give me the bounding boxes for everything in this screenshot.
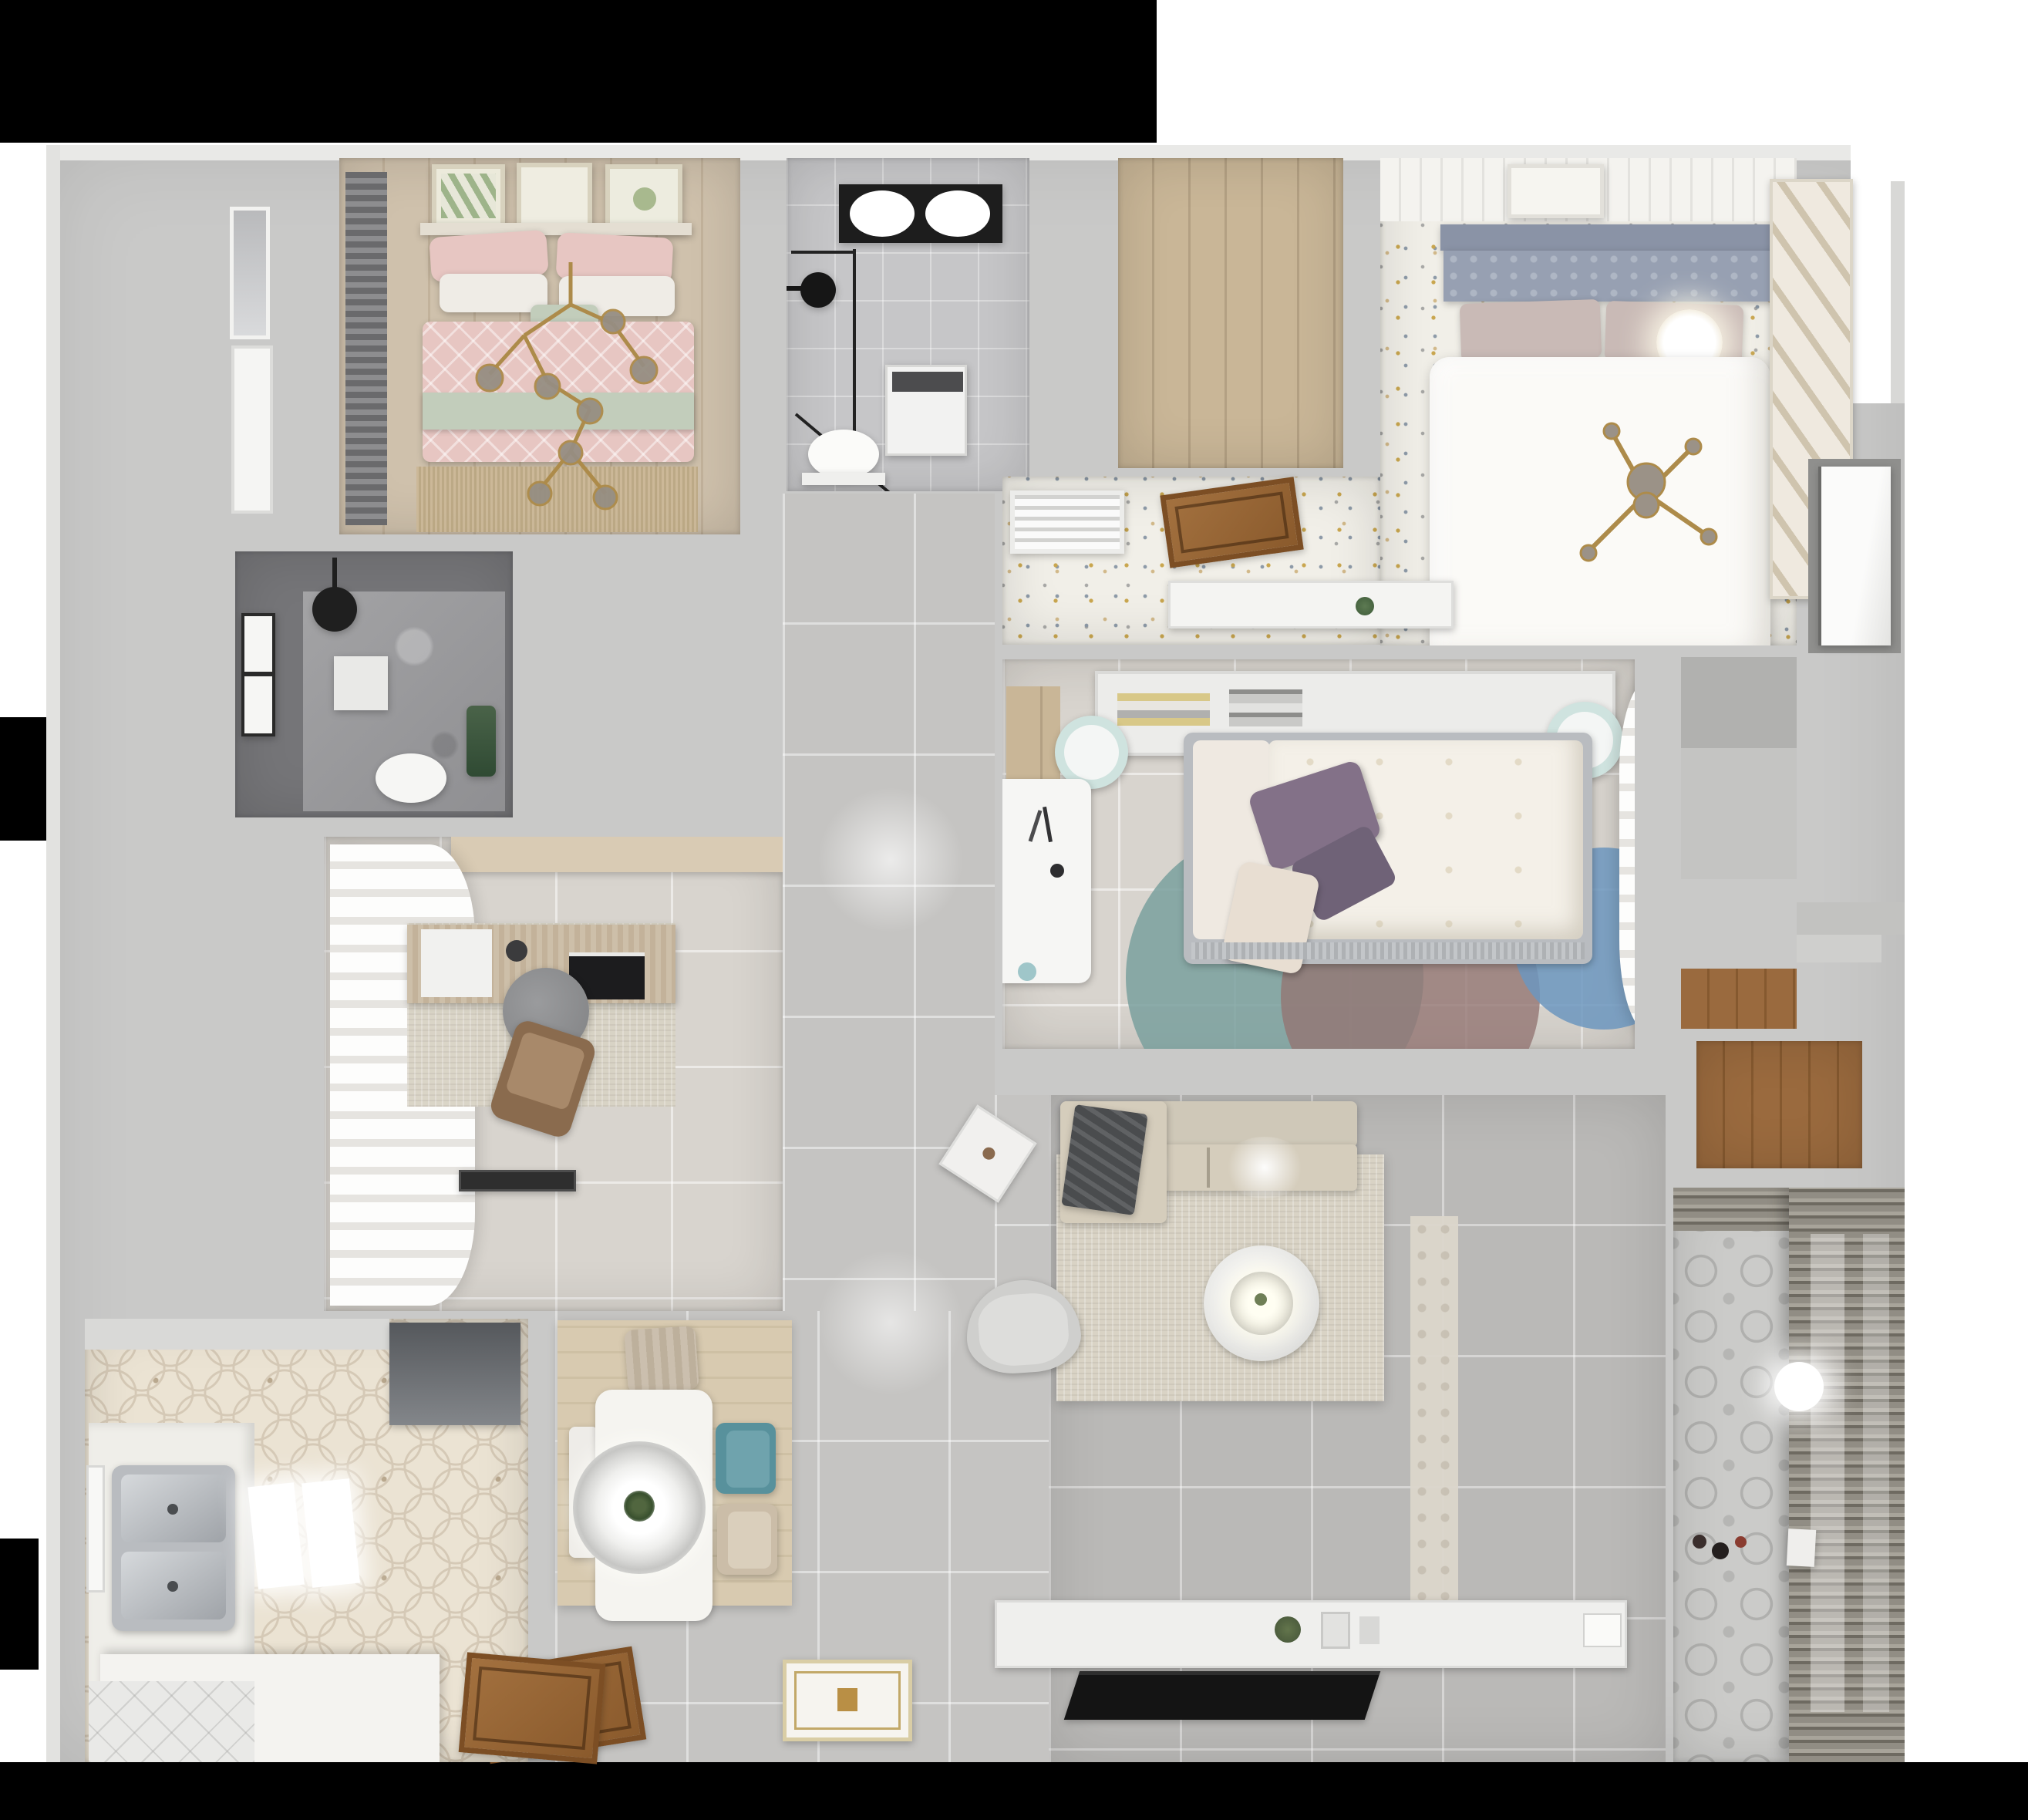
white-desk xyxy=(1002,779,1091,983)
pouf-mint-left xyxy=(1055,716,1128,789)
room-balcony xyxy=(1673,1188,1905,1762)
pillow-mauve-left xyxy=(1460,299,1602,362)
console-plant xyxy=(1275,1616,1301,1643)
toy-2 xyxy=(1712,1542,1729,1559)
blind-light-column-2 xyxy=(1863,1234,1889,1712)
annex-step-2 xyxy=(1797,935,1881,962)
shower-arm xyxy=(787,286,803,291)
mat-motif xyxy=(837,1688,857,1711)
skylight xyxy=(839,184,1002,243)
left-wall-door xyxy=(231,345,273,514)
washer-panel xyxy=(892,372,963,392)
art-frame-1 xyxy=(432,164,505,228)
pouf-top xyxy=(1064,725,1119,780)
toilet xyxy=(376,753,446,803)
shower-glass-v xyxy=(853,249,856,438)
pen-cup xyxy=(506,940,527,962)
dining-chair-teal xyxy=(716,1423,776,1494)
toilet xyxy=(808,430,879,479)
armchair-seat xyxy=(976,1291,1070,1368)
tv-console xyxy=(995,1600,1627,1668)
annex-step-1 xyxy=(1797,902,1905,935)
dining-chair-top xyxy=(624,1326,699,1394)
sheer-curtain-right xyxy=(1619,679,1635,1033)
wall-shelf xyxy=(334,656,388,710)
room-bedroom-pink xyxy=(339,158,740,534)
headboard-bar xyxy=(1440,224,1781,251)
shaft-wood-ledge xyxy=(1681,969,1797,1029)
matte-left-b xyxy=(0,1539,39,1670)
ac-vent-grille xyxy=(1010,490,1124,554)
window-mullion xyxy=(244,672,272,676)
skylight-glow-left xyxy=(850,190,915,237)
toy-3 xyxy=(1735,1536,1747,1548)
pendant-plant xyxy=(624,1491,655,1522)
floor-plan-render xyxy=(0,0,2028,1820)
cabinet-strip xyxy=(451,837,783,872)
matte-left-a xyxy=(0,717,46,841)
art-frame-3 xyxy=(605,164,682,232)
console-frame-2 xyxy=(1359,1616,1380,1644)
pendant-lamp xyxy=(573,1441,706,1574)
art-frame xyxy=(1508,164,1604,218)
pen-1 xyxy=(1029,810,1043,841)
console-shelf xyxy=(1168,581,1454,629)
hall-light-glow-1 xyxy=(817,787,964,933)
room-kitchen xyxy=(85,1319,528,1762)
ceiling-light-1 xyxy=(248,1482,305,1589)
matte-top xyxy=(0,0,1157,143)
annex-white-door xyxy=(1818,467,1891,645)
dining-chair-beige xyxy=(717,1504,777,1575)
blind-light-column-1 xyxy=(1811,1234,1844,1712)
plant-green xyxy=(467,706,496,777)
shaft-block-top xyxy=(1681,657,1797,748)
pen-2 xyxy=(1043,807,1053,842)
sink-basin-1 xyxy=(121,1475,226,1542)
roman-blind xyxy=(345,172,387,525)
matte-bottom xyxy=(0,1762,2028,1820)
bedroom-pink-window xyxy=(230,207,270,339)
wall-edge-top-right xyxy=(1891,181,1905,403)
doormat xyxy=(459,1170,576,1191)
cushion-divider xyxy=(1207,1148,1210,1188)
room-bedroom-white xyxy=(1380,158,1797,645)
rain-shower-head xyxy=(312,587,357,632)
hall-light-glow-2 xyxy=(817,1249,964,1396)
skylight-glow-right xyxy=(925,190,990,237)
art-motif xyxy=(633,187,656,211)
books-stack-2 xyxy=(1229,689,1302,726)
storage-room-floor xyxy=(1696,1041,1862,1168)
throw-dark xyxy=(1061,1104,1147,1215)
shaft-block-mid xyxy=(1681,748,1797,879)
art-frame-2 xyxy=(517,163,592,229)
drain xyxy=(167,1581,178,1592)
sink-basin-2 xyxy=(121,1552,226,1619)
room-shower-dark xyxy=(235,551,513,817)
console-frame-1 xyxy=(1321,1612,1350,1649)
tv-flat xyxy=(1064,1671,1380,1720)
room-study xyxy=(324,837,783,1311)
table-sprig xyxy=(1255,1293,1267,1306)
drain xyxy=(167,1504,178,1515)
entry-mat xyxy=(783,1660,912,1741)
range-hood xyxy=(389,1323,520,1425)
shower-head xyxy=(800,272,836,308)
plant-small xyxy=(1356,597,1374,615)
chair-cushion xyxy=(728,1512,771,1569)
storage-box-white xyxy=(1787,1528,1816,1567)
blinds-wall xyxy=(1789,1188,1905,1762)
desk-knob xyxy=(1050,864,1064,878)
toilet-tank xyxy=(802,473,885,485)
runner-patterned xyxy=(1410,1216,1458,1630)
washing-machine xyxy=(885,365,967,456)
console-box xyxy=(1583,1613,1622,1647)
ceiling-light-2 xyxy=(302,1478,360,1588)
kitchen-window xyxy=(86,1465,105,1592)
window xyxy=(241,613,275,736)
books-stack-1 xyxy=(1117,693,1210,726)
teal-cup xyxy=(1018,962,1036,981)
lounge-cushion xyxy=(505,1031,586,1111)
seat-glow-2 xyxy=(1222,1137,1307,1198)
shower-glass-h xyxy=(791,251,856,254)
bed-frame xyxy=(1184,733,1592,964)
gold-cross-chandelier xyxy=(1542,389,1750,598)
room-bedroom-center xyxy=(1002,659,1635,1049)
shower-arm xyxy=(332,558,337,591)
headboard xyxy=(420,223,692,235)
double-sink xyxy=(112,1465,235,1631)
gold-branch-chandelier xyxy=(455,251,686,528)
desk-blotter xyxy=(421,929,492,997)
art-print xyxy=(441,174,496,218)
coffee-table xyxy=(1204,1245,1319,1361)
wall-face-west xyxy=(46,145,60,1762)
room-bathroom-skylight xyxy=(787,158,1029,491)
bed-skirt xyxy=(1191,942,1585,959)
toy-1 xyxy=(1693,1535,1706,1549)
white-tile-corner xyxy=(89,1681,254,1762)
side-table-decor xyxy=(980,1145,997,1162)
balcony-lamp xyxy=(1774,1362,1824,1411)
kitchen-north-wall-face xyxy=(85,1319,389,1350)
headboard-tufted xyxy=(1444,251,1778,302)
room-walkin-closet xyxy=(1118,158,1343,468)
kitchen-open-door xyxy=(459,1652,606,1764)
chair-cushion xyxy=(726,1431,770,1488)
